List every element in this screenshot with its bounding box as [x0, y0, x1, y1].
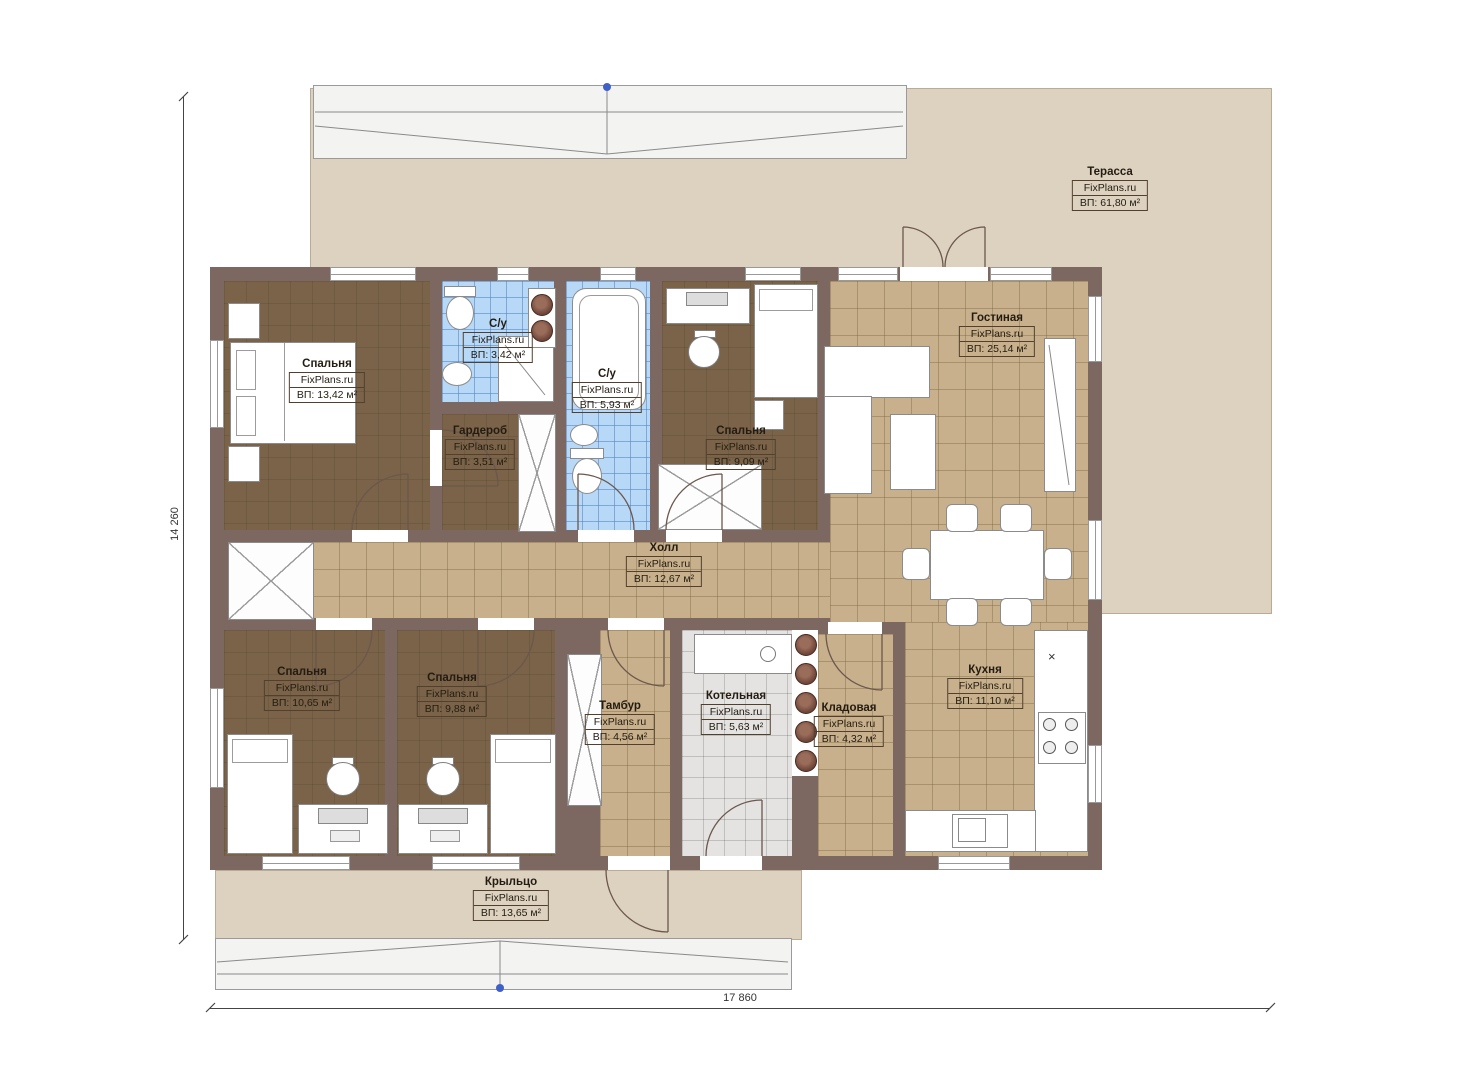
kitchen-x-mark: × — [1048, 650, 1056, 663]
room-name: Терасса — [1072, 166, 1148, 178]
room-area: ВП: 25,14 м² — [960, 342, 1034, 356]
terrace-roof-gutter — [313, 85, 907, 159]
watermark: FixPlans.ru — [1073, 181, 1147, 196]
dining-chair — [946, 504, 978, 532]
blanket-line — [284, 343, 285, 441]
wardrobe-closet — [518, 414, 556, 532]
window — [262, 856, 350, 870]
floor-plan-canvas: × — [0, 0, 1474, 1080]
room-name: Кладовая — [814, 702, 884, 714]
room-area: ВП: 13,42 м² — [290, 388, 364, 402]
window — [1088, 520, 1102, 600]
window — [600, 267, 636, 281]
office-chair — [426, 762, 460, 796]
room-area: ВП: 11,10 м² — [948, 694, 1022, 708]
office-chair — [326, 762, 360, 796]
door-opening — [352, 530, 408, 542]
pillow — [232, 739, 288, 763]
pillow — [236, 396, 256, 436]
watermark: FixPlans.ru — [418, 687, 486, 702]
watermark: FixPlans.ru — [960, 327, 1034, 342]
heater-tank-icon — [795, 750, 817, 772]
bedroom-2-closet — [658, 464, 762, 530]
watermark: FixPlans.ru — [707, 440, 775, 455]
window — [1088, 745, 1102, 803]
watermark: FixPlans.ru — [265, 681, 339, 696]
room-label-bedroom-2: Спальня FixPlans.ru ВП: 9,09 м² — [706, 425, 776, 470]
room-name: С/у — [463, 318, 533, 330]
room-label-porch: Крыльцо FixPlans.ru ВП: 13,65 м² — [473, 876, 549, 921]
dining-table — [930, 530, 1044, 600]
burner-icon — [1043, 718, 1056, 731]
monitor — [686, 292, 728, 306]
window — [838, 267, 898, 281]
boiler-counter — [694, 634, 792, 674]
room-label-boiler: Котельная FixPlans.ru ВП: 5,63 м² — [701, 690, 771, 735]
window — [210, 688, 224, 788]
monitor — [318, 808, 368, 824]
door-opening — [608, 618, 664, 630]
room-area: ВП: 3,51 м² — [446, 455, 514, 469]
window — [210, 340, 224, 428]
room-label-hall: Холл FixPlans.ru ВП: 12,67 м² — [626, 542, 702, 587]
room-name: Гостиная — [959, 312, 1035, 324]
watermark: FixPlans.ru — [474, 891, 548, 906]
front-door-opening — [608, 856, 670, 870]
stove — [1038, 712, 1086, 764]
sofa — [824, 346, 930, 398]
room-label-terrace: Терасса FixPlans.ru ВП: 61,80 м² — [1072, 166, 1148, 211]
room-label-bathroom-1: С/у FixPlans.ru ВП: 3,42 м² — [463, 318, 533, 363]
room-label-living: Гостиная FixPlans.ru ВП: 25,14 м² — [959, 312, 1035, 357]
sink — [442, 362, 472, 386]
washer-drum-icon — [531, 294, 553, 316]
sofa-chaise — [824, 396, 872, 494]
burner-icon — [1065, 741, 1078, 754]
room-label-bathroom-2: С/у FixPlans.ru ВП: 5,93 м² — [572, 368, 642, 413]
room-name: Котельная — [701, 690, 771, 702]
room-name: Спальня — [706, 425, 776, 437]
room-area: ВП: 5,63 м² — [702, 720, 770, 734]
pillow — [759, 289, 813, 311]
room-area: ВП: 9,09 м² — [707, 455, 775, 469]
room-name: Спальня — [289, 358, 365, 370]
heater-tank-icon — [795, 634, 817, 656]
pillow — [495, 739, 551, 763]
boiler-sink-icon — [760, 646, 776, 662]
washer-drum-icon — [531, 320, 553, 342]
watermark: FixPlans.ru — [446, 440, 514, 455]
heater-tank-icon — [795, 663, 817, 685]
door-opening — [430, 430, 442, 486]
door-opening — [828, 622, 882, 634]
nightstand — [228, 446, 260, 482]
door-opening — [478, 618, 534, 630]
window — [990, 267, 1052, 281]
dining-chair — [1000, 504, 1032, 532]
dining-chair — [1044, 548, 1072, 580]
watermark: FixPlans.ru — [290, 373, 364, 388]
window — [1088, 296, 1102, 362]
room-name: Спальня — [264, 666, 340, 678]
dining-chair — [946, 598, 978, 626]
burner-icon — [1043, 741, 1056, 754]
room-area: ВП: 13,65 м² — [474, 906, 548, 920]
room-label-kitchen: Кухня FixPlans.ru ВП: 11,10 м² — [947, 664, 1023, 709]
window — [745, 267, 801, 281]
dimension-line-vertical — [183, 97, 184, 940]
room-name: Гардероб — [445, 425, 515, 437]
dimension-height-label: 14 260 — [169, 507, 181, 541]
door-opening — [316, 618, 372, 630]
room-area: ВП: 9,88 м² — [418, 702, 486, 716]
room-area: ВП: 12,67 м² — [627, 572, 701, 586]
keyboard — [430, 830, 460, 842]
room-area: ВП: 10,65 м² — [265, 696, 339, 710]
room-name: Крыльцо — [473, 876, 549, 888]
dimension-width-label: 17 860 — [723, 992, 757, 1004]
dimension-line-horizontal — [210, 1008, 1270, 1009]
room-area: ВП: 4,32 м² — [815, 732, 883, 746]
window — [330, 267, 416, 281]
watermark: FixPlans.ru — [573, 383, 641, 398]
hall-living-opening — [818, 542, 830, 618]
watermark: FixPlans.ru — [815, 717, 883, 732]
sink — [570, 424, 598, 446]
monitor — [418, 808, 468, 824]
kitchen-sink-bowl — [958, 818, 986, 842]
coffee-table — [890, 414, 936, 490]
watermark: FixPlans.ru — [586, 715, 654, 730]
room-name: Холл — [626, 542, 702, 554]
room-area: ВП: 5,93 м² — [573, 398, 641, 412]
room-label-wardrobe: Гардероб FixPlans.ru ВП: 3,51 м² — [445, 425, 515, 470]
room-name: Тамбур — [585, 700, 655, 712]
room-hall-floor — [312, 542, 818, 618]
room-label-vestibule: Тамбур FixPlans.ru ВП: 4,56 м² — [585, 700, 655, 745]
window — [432, 856, 520, 870]
room-name: С/у — [572, 368, 642, 380]
watermark: FixPlans.ru — [464, 333, 532, 348]
hall-closet — [228, 542, 314, 620]
watermark: FixPlans.ru — [702, 705, 770, 720]
room-area: ВП: 61,80 м² — [1073, 196, 1147, 210]
window — [938, 856, 1010, 870]
door-opening — [666, 530, 722, 542]
boiler-door-opening — [700, 856, 762, 870]
pillow — [236, 350, 256, 390]
room-name: Спальня — [417, 672, 487, 684]
dining-chair — [1000, 598, 1032, 626]
watermark: FixPlans.ru — [627, 557, 701, 572]
porch-roof-gutter — [215, 938, 792, 990]
keyboard — [330, 830, 360, 842]
office-chair — [688, 336, 720, 368]
door-opening — [578, 530, 634, 542]
room-area: ВП: 3,42 м² — [464, 348, 532, 362]
tv-cabinet — [1044, 338, 1076, 492]
room-name: Кухня — [947, 664, 1023, 676]
terrace-door-opening — [900, 267, 988, 281]
room-label-bedroom-4: Спальня FixPlans.ru ВП: 9,88 м² — [417, 672, 487, 717]
burner-icon — [1065, 718, 1078, 731]
room-label-bedroom-1: Спальня FixPlans.ru ВП: 13,42 м² — [289, 358, 365, 403]
nightstand — [228, 303, 260, 339]
window — [497, 267, 529, 281]
room-area: ВП: 4,56 м² — [586, 730, 654, 744]
room-label-bedroom-3: Спальня FixPlans.ru ВП: 10,65 м² — [264, 666, 340, 711]
watermark: FixPlans.ru — [948, 679, 1022, 694]
room-label-storage: Кладовая FixPlans.ru ВП: 4,32 м² — [814, 702, 884, 747]
toilet — [572, 458, 602, 494]
dining-chair — [902, 548, 930, 580]
